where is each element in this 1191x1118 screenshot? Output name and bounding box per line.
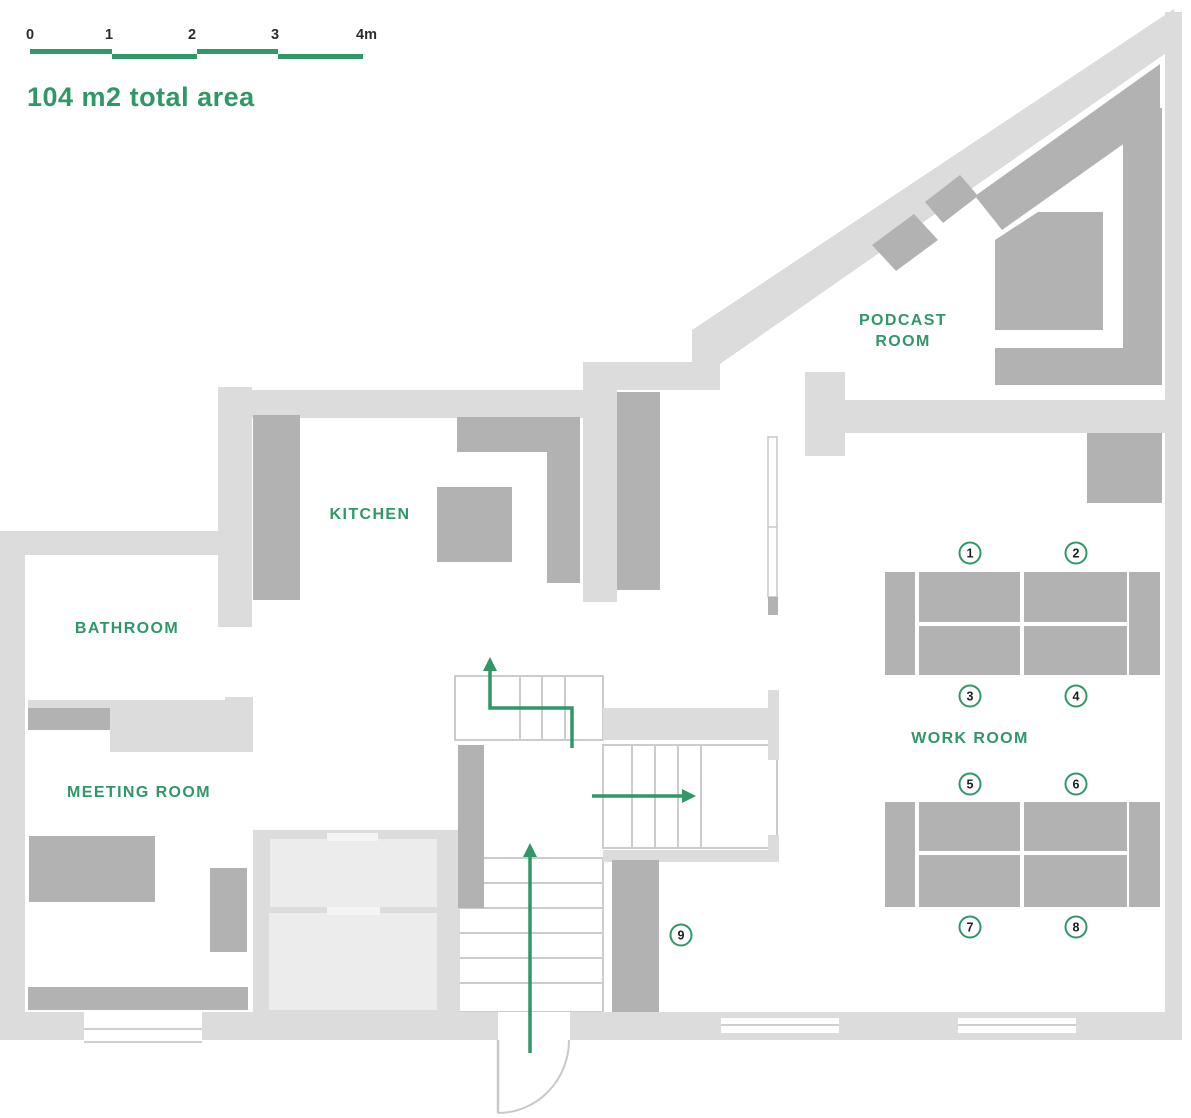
wall-corridor-stub (603, 708, 768, 740)
room-label-podcast-line2: ROOM (859, 331, 947, 352)
workstation-badge-7: 7 (959, 916, 982, 939)
scale-bar-segment (278, 54, 363, 59)
meeting-table (29, 836, 155, 902)
wall-bathroom-top (0, 531, 227, 555)
workstation-badge-9: 9 (670, 924, 693, 947)
kitchen-island (437, 487, 512, 562)
desk-9 (612, 860, 659, 1012)
room-label-bathroom: BATHROOM (75, 620, 179, 638)
floor-plan-drawing (0, 0, 1191, 1118)
desk-6 (1024, 802, 1127, 851)
desk-cluster-a-right-cap (1129, 572, 1160, 675)
podcast-table (995, 212, 1103, 330)
bathroom-sink-counter (28, 708, 110, 730)
phone-booth-2 (269, 913, 437, 1010)
desk-7 (919, 855, 1020, 907)
workstation-badge-5: 5 (959, 773, 982, 796)
wall-kitchen-top (223, 390, 583, 418)
wall-kitchen-left (218, 387, 252, 627)
desk-8 (1024, 855, 1127, 907)
phone-booth-1-door (327, 833, 378, 841)
desk-cluster-b-left-cap (885, 802, 915, 907)
room-label-podcast: PODCAST ROOM (859, 310, 947, 352)
scale-tick-0: 0 (26, 27, 34, 43)
kitchen-counter-top (457, 417, 580, 452)
workstation-badge-3: 3 (959, 685, 982, 708)
desk-2 (1024, 572, 1127, 622)
kitchen-counter-side (547, 452, 580, 583)
wall-bathroom-door-jamb (225, 697, 253, 752)
phone-booths (269, 833, 437, 1010)
room-label-meeting: MEETING ROOM (67, 784, 211, 802)
wall-kitchen-right-vertical (583, 362, 617, 602)
scale-tick-4: 4m (356, 27, 377, 43)
phone-booth-1 (270, 839, 437, 907)
wall-kitchen-right-horizontal (583, 362, 720, 390)
wall-podcast-divider (815, 400, 1182, 433)
workstation-badge-6: 6 (1065, 773, 1088, 796)
room-label-kitchen: KITCHEN (330, 506, 411, 524)
workstation-badge-4: 4 (1065, 685, 1088, 708)
wall-corridor-lower-cap (768, 835, 779, 862)
scale-bar-segment (197, 49, 278, 54)
meeting-sofa (28, 987, 248, 1010)
scale-tick-1: 1 (105, 27, 113, 43)
wall-podcast-pillar (805, 372, 845, 456)
room-label-work: WORK ROOM (911, 730, 1028, 748)
desk-5 (919, 802, 1020, 851)
workstation-badge-1: 1 (959, 542, 982, 565)
scale-tick-2: 2 (188, 27, 196, 43)
podcast-sofa-right (1123, 108, 1162, 350)
scale-bar-segment (112, 54, 197, 59)
scale-bar-segment (30, 49, 112, 54)
workstation-badge-8: 8 (1065, 916, 1088, 939)
stair-pillar (458, 745, 484, 908)
desk-4 (1024, 626, 1127, 675)
desk-3 (919, 626, 1020, 675)
meeting-cabinet (210, 868, 247, 952)
wall-right (1165, 12, 1182, 1040)
podcast-sofa-bottom (995, 348, 1162, 385)
hallway-cabinet (617, 392, 660, 590)
glass-partition (768, 437, 778, 615)
workstation-badge-2: 2 (1065, 542, 1088, 565)
glass-partition-post (768, 597, 778, 615)
desk-cluster-b-right-cap (1129, 802, 1160, 907)
arrow-up-stairs-head (483, 657, 497, 671)
wall-left (0, 531, 25, 1040)
desk-1 (919, 572, 1020, 622)
arrow-entrance-head (523, 843, 537, 857)
room-label-podcast-line1: PODCAST (859, 310, 947, 331)
scale-tick-3: 3 (271, 27, 279, 43)
desk-cluster-a-left-cap (885, 572, 915, 675)
kitchen-counter-left (253, 415, 300, 600)
wall-corridor-stub-cap (768, 690, 779, 760)
floor-plan: 0 1 2 3 4m 104 m2 total area PODCAST ROO… (0, 0, 1191, 1118)
total-area-label: 104 m2 total area (27, 82, 255, 113)
phone-booth-2-door (327, 907, 380, 915)
entrance-door (498, 1012, 570, 1113)
workroom-cabinet (1087, 433, 1162, 503)
